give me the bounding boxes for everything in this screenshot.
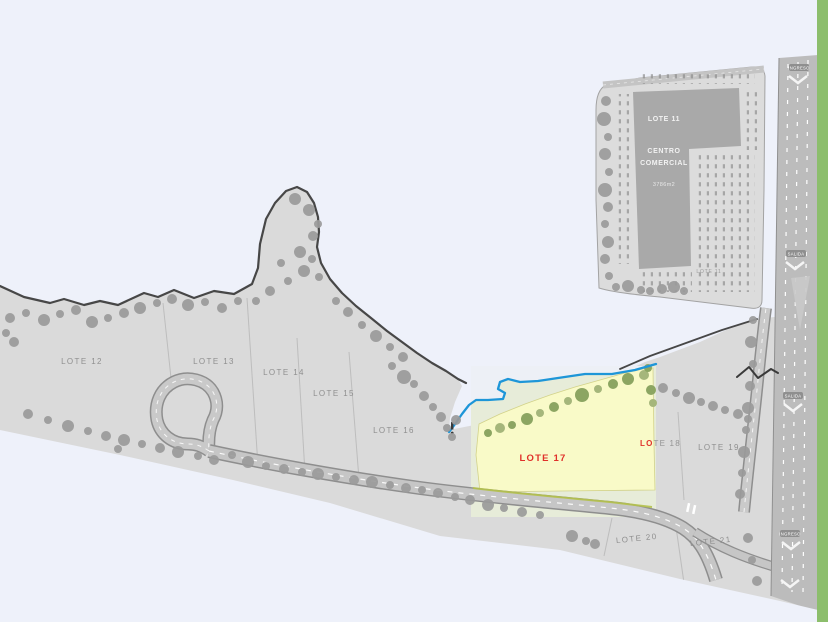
highway-station-label-2: SALIDA bbox=[788, 251, 805, 256]
highway-station-label-3: SALIDA bbox=[785, 393, 802, 398]
lot-label-lote-18: LOTE 18 bbox=[640, 439, 681, 448]
lot-label-lote-14: LOTE 14 bbox=[263, 368, 305, 377]
site-plan-map: LOTE 11 CENTRO COMERCIAL 3786m2 LOTE 11 bbox=[0, 0, 828, 622]
lot-label-lote-12: LOTE 12 bbox=[61, 357, 103, 366]
commercial-parcel: LOTE 11 CENTRO COMERCIAL 3786m2 LOTE 11 bbox=[596, 67, 765, 308]
green-sidebar bbox=[817, 0, 828, 622]
building-label-line4: 3786m2 bbox=[653, 182, 675, 188]
building-label-line3: COMERCIAL bbox=[640, 160, 688, 167]
lot-label-lote-16: LOTE 16 bbox=[373, 426, 415, 435]
lote18-gray-fragment: TE 18 bbox=[654, 439, 681, 448]
lote18-red-fragment: LO bbox=[640, 439, 654, 448]
building-label-line1: LOTE 11 bbox=[648, 116, 680, 123]
parcel-corner-label: LOTE 11 bbox=[696, 269, 721, 275]
lot-label-lote-19: LOTE 19 bbox=[698, 443, 740, 452]
building-label-line2: CENTRO bbox=[647, 148, 680, 155]
highlight-lot-label: LOTE 17 bbox=[520, 453, 567, 464]
lot-label-lote-15: LOTE 15 bbox=[313, 389, 355, 398]
highway-station-label-1: INGRESO bbox=[788, 65, 810, 70]
highway-station-label-4: INGRESO bbox=[779, 531, 801, 536]
highway: INGRESO SALIDA SALIDA INGRESO bbox=[771, 55, 818, 612]
lot-label-lote-13: LOTE 13 bbox=[193, 357, 235, 366]
